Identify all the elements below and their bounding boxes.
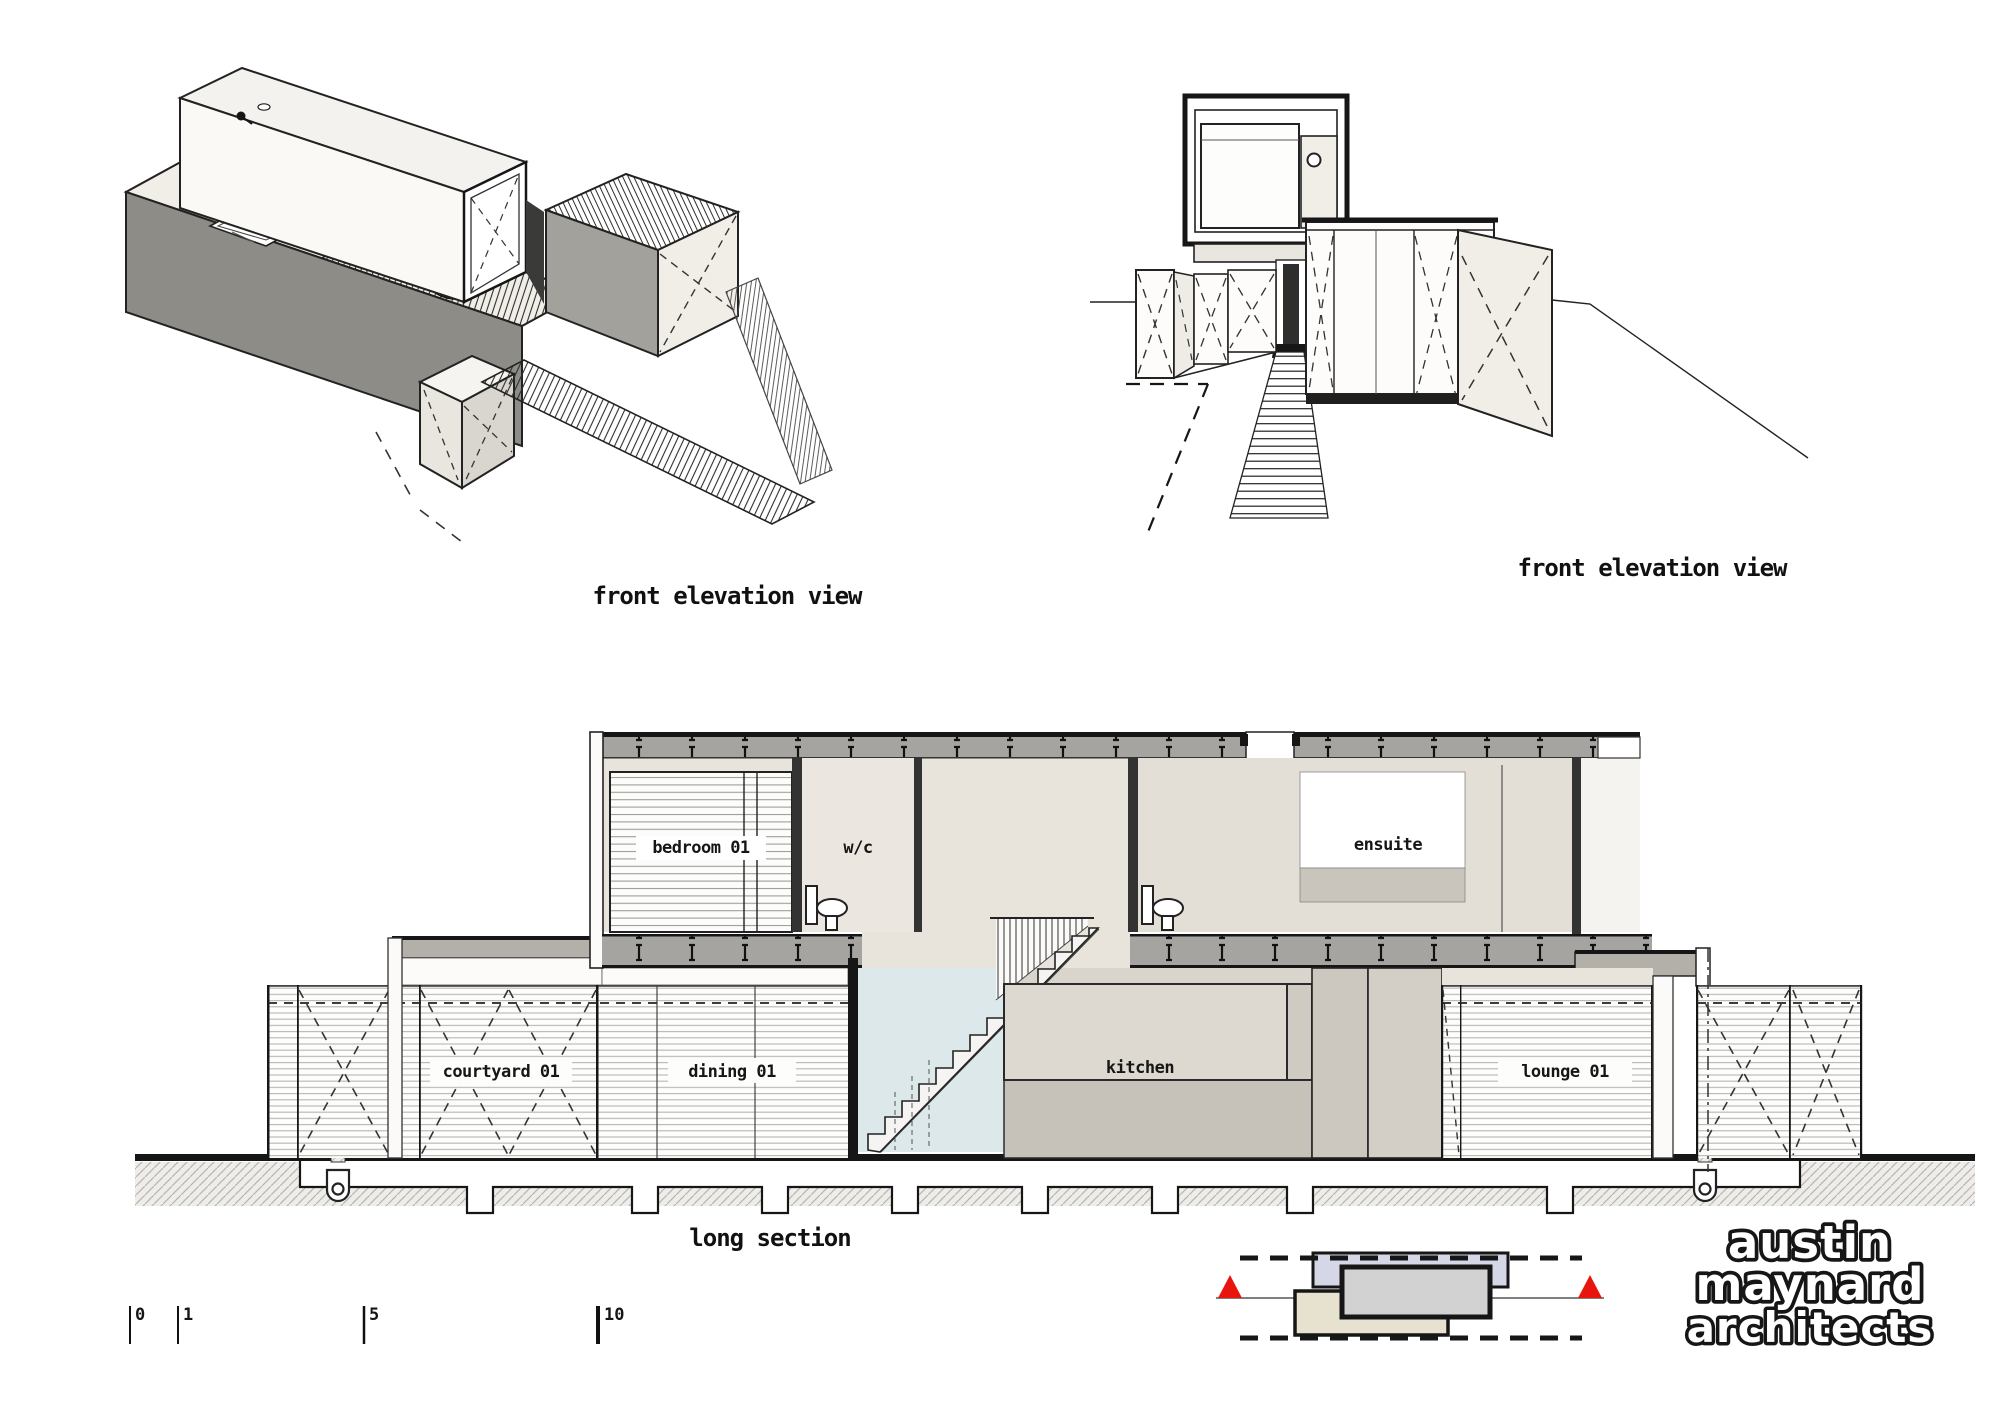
perspective-view-drawing <box>1080 60 1840 560</box>
key-middle-volume <box>1342 1267 1490 1317</box>
bedroom-label: bedroom 01 <box>652 838 750 858</box>
gate-panel <box>1228 270 1276 352</box>
right-screen <box>1696 948 1862 1172</box>
courtyard-label: courtyard 01 <box>443 1062 560 1082</box>
axonometric-view-label: front elevation view <box>517 582 937 610</box>
upper-left-wall <box>590 732 603 968</box>
plunge-pool <box>858 968 1005 1152</box>
upper-box-underside <box>1194 244 1306 262</box>
wc-label: w/c <box>843 838 872 858</box>
axonometric-view-drawing <box>100 50 860 550</box>
dining-label: dining 01 <box>688 1062 776 1082</box>
front-box-left <box>420 382 462 488</box>
lounge-label: lounge 01 <box>1521 1062 1609 1082</box>
right-wall <box>1653 976 1673 1158</box>
section-marker-right <box>1578 1275 1602 1298</box>
perspective-house <box>1090 96 1808 532</box>
dining-zone: dining 01 <box>600 985 848 1158</box>
section-marker-left <box>1218 1275 1242 1298</box>
lounge-screen: lounge 01 <box>1441 985 1653 1158</box>
scale-tick-0: 0 <box>135 1305 145 1325</box>
logo-line-3: architects <box>1687 1303 1934 1352</box>
dining-clerestory <box>400 958 602 985</box>
section-key-diagram <box>1210 1235 1610 1355</box>
tall-cupboard-2 <box>1368 968 1442 1158</box>
scale-tick-5: 5 <box>369 1305 379 1325</box>
porthole <box>1308 154 1321 167</box>
long-section-label: long section <box>560 1224 980 1252</box>
skylight <box>1246 732 1294 759</box>
scale-tick-10: 10 <box>604 1305 624 1325</box>
ensuite-label: ensuite <box>1354 835 1422 855</box>
firm-logo: austin maynard architects <box>1640 1212 1980 1362</box>
kitchen-joinery: kitchen <box>1004 984 1312 1158</box>
right-side-volume <box>1458 230 1552 436</box>
scale-tick-1: 1 <box>183 1305 193 1325</box>
scale-bar: 0 1 5 10 <box>120 1300 680 1360</box>
tall-cupboard-1 <box>1312 968 1368 1158</box>
long-section-drawing: bedroom 01 w/c ensuite <box>100 700 1980 1220</box>
side-path <box>726 278 832 484</box>
dining-parapet-wall <box>388 938 402 1158</box>
perspective-view-label: front elevation view <box>1442 554 1862 582</box>
drawing-sheet: front elevation view <box>0 0 2000 1413</box>
axon-house-massing <box>126 68 832 542</box>
upper-door-panel <box>1301 136 1337 228</box>
roof-vent <box>258 104 270 110</box>
courtyard-screen: courtyard 01 <box>267 985 600 1158</box>
kitchen-label: kitchen <box>1106 1058 1174 1078</box>
